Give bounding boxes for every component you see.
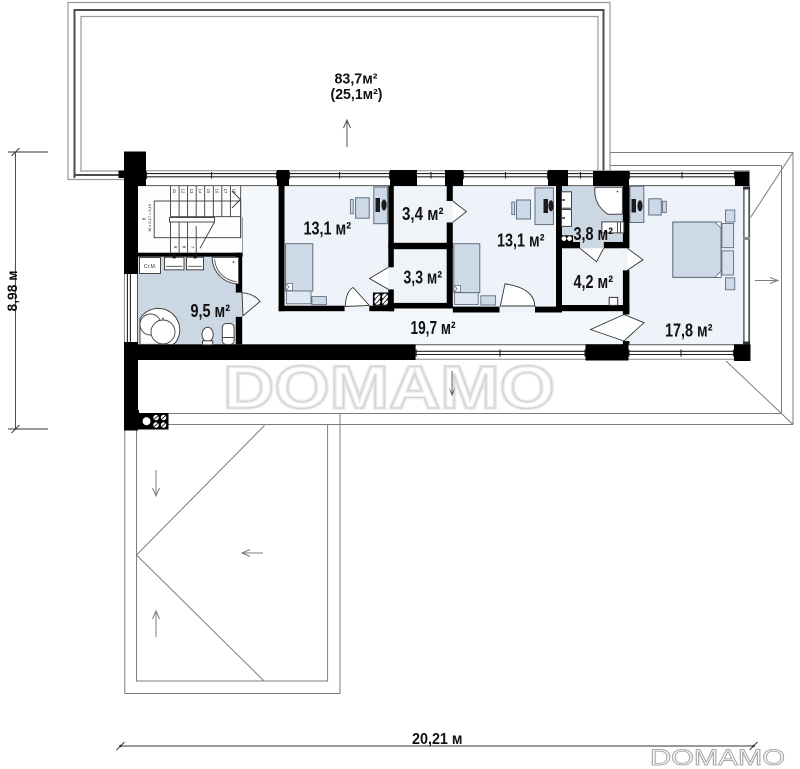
svg-text:13: 13 xyxy=(189,189,194,194)
svg-text:9,5 м²: 9,5 м² xyxy=(191,301,231,321)
svg-text:15: 15 xyxy=(206,189,211,194)
svg-text:3,4 м²: 3,4 м² xyxy=(402,204,444,224)
svg-text:20,21 м: 20,21 м xyxy=(412,731,463,748)
svg-text:8,98 м: 8,98 м xyxy=(4,271,20,312)
svg-text:Ст.М.: Ст.М. xyxy=(144,264,156,270)
svg-text:13,1 м²: 13,1 м² xyxy=(304,219,352,239)
svg-text:17: 17 xyxy=(223,189,228,194)
svg-text:11: 11 xyxy=(172,189,177,194)
svg-text:16 x 0,17 = 3,15: 16 x 0,17 = 3,15 xyxy=(147,204,152,232)
svg-text:3,8 м²: 3,8 м² xyxy=(574,224,614,244)
svg-text:18: 18 xyxy=(232,189,237,194)
svg-text:16: 16 xyxy=(215,189,220,194)
svg-text:3,3 м²: 3,3 м² xyxy=(404,268,443,288)
svg-text:DOMAMO: DOMAMO xyxy=(650,745,785,769)
svg-text:(25,1м²): (25,1м²) xyxy=(331,87,383,103)
svg-text:DOMAMO: DOMAMO xyxy=(223,354,555,421)
svg-text:17,8 м²: 17,8 м² xyxy=(665,321,713,341)
svg-text:4,2 м²: 4,2 м² xyxy=(574,272,614,292)
svg-text:12: 12 xyxy=(181,189,186,194)
svg-text:13,1 м²: 13,1 м² xyxy=(497,231,545,251)
svg-text:83,7м²: 83,7м² xyxy=(335,72,378,88)
svg-text:19,7 м²: 19,7 м² xyxy=(411,318,456,338)
svg-text:14: 14 xyxy=(198,189,203,194)
